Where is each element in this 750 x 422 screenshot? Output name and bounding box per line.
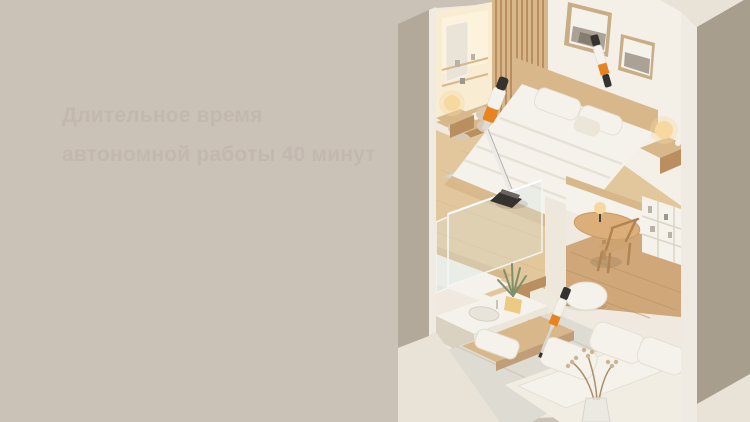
apartment-cutaway-illustration [0,0,750,422]
pouf [565,282,607,311]
hero-banner: Длительное время автономной работы 40 ми… [0,0,750,422]
ball-lamp [655,121,673,139]
ball-lamp [444,95,460,111]
glass-vase [582,398,610,422]
mirror-panel [446,21,468,82]
